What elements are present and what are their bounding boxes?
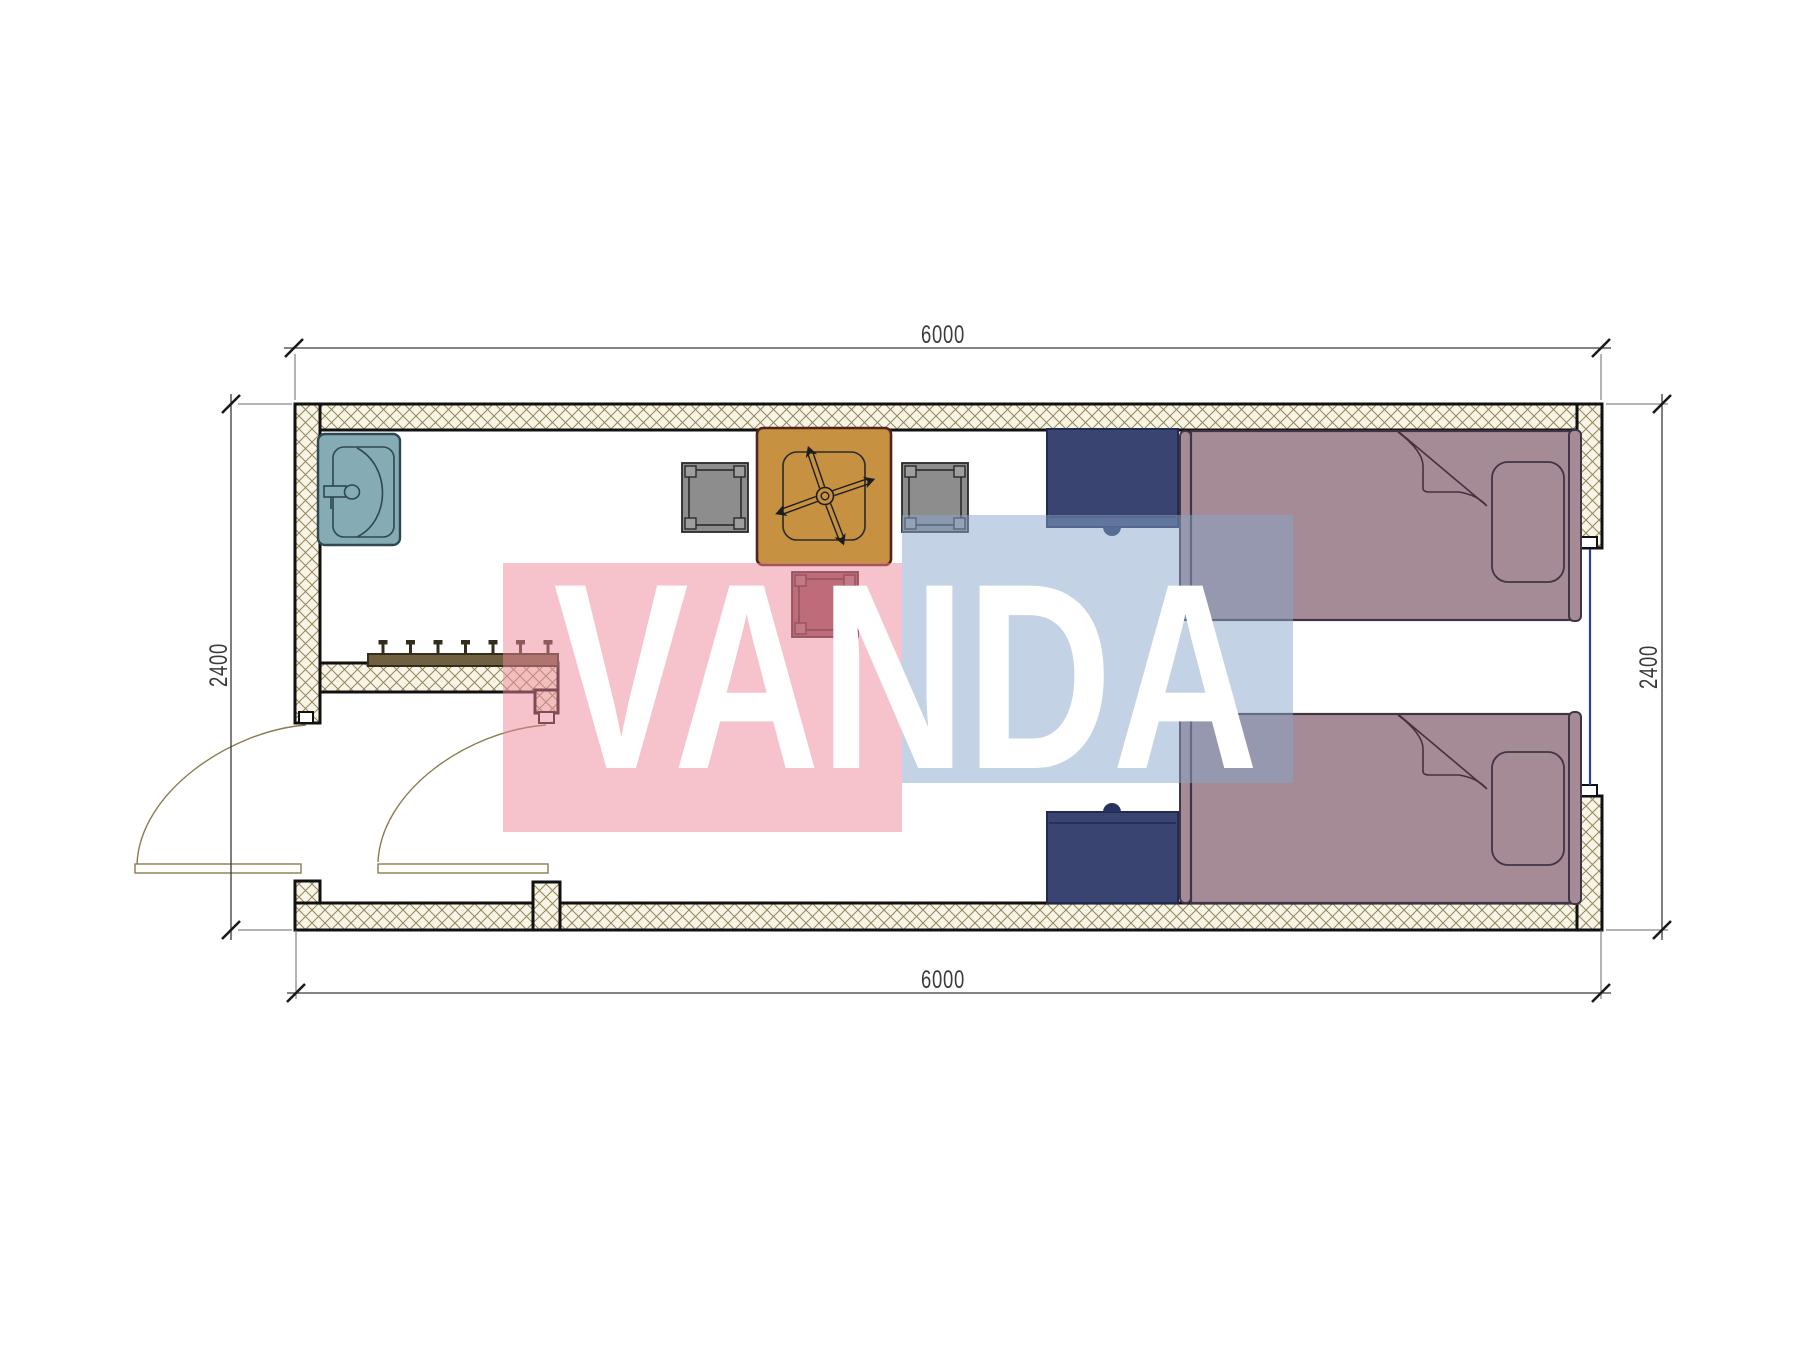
sink-faucet (324, 486, 346, 497)
bed-footboard (1569, 712, 1581, 904)
wall-cap (1580, 537, 1597, 548)
bed-footboard (1569, 430, 1581, 621)
wall-pier (533, 882, 560, 930)
wall-bottom (295, 903, 1602, 930)
door-swing-arc (137, 725, 306, 864)
door-leaf (135, 864, 301, 873)
wall-cap (299, 712, 313, 723)
floor-plan-page: 6000 6000 2400 2400 VANDA (0, 0, 1800, 1350)
floor-plan-drawing: 6000 6000 2400 2400 VANDA (0, 0, 1800, 1350)
sink-icon (318, 434, 400, 545)
dim-label-top: 6000 (921, 321, 965, 349)
watermark: VANDA (503, 515, 1293, 832)
watermark-text: VANDA (554, 529, 1259, 825)
wall-left (295, 404, 320, 723)
wall-cap (1580, 785, 1597, 796)
dim-label-right: 2400 (1635, 645, 1663, 689)
door-left (135, 725, 306, 873)
stool-left-icon (682, 463, 748, 532)
door-leaf (378, 864, 548, 873)
pillow (1492, 752, 1564, 865)
dim-label-bottom: 6000 (921, 966, 965, 994)
pillow (1492, 462, 1564, 582)
dim-label-left: 2400 (205, 643, 233, 687)
wall-top (295, 404, 1602, 430)
